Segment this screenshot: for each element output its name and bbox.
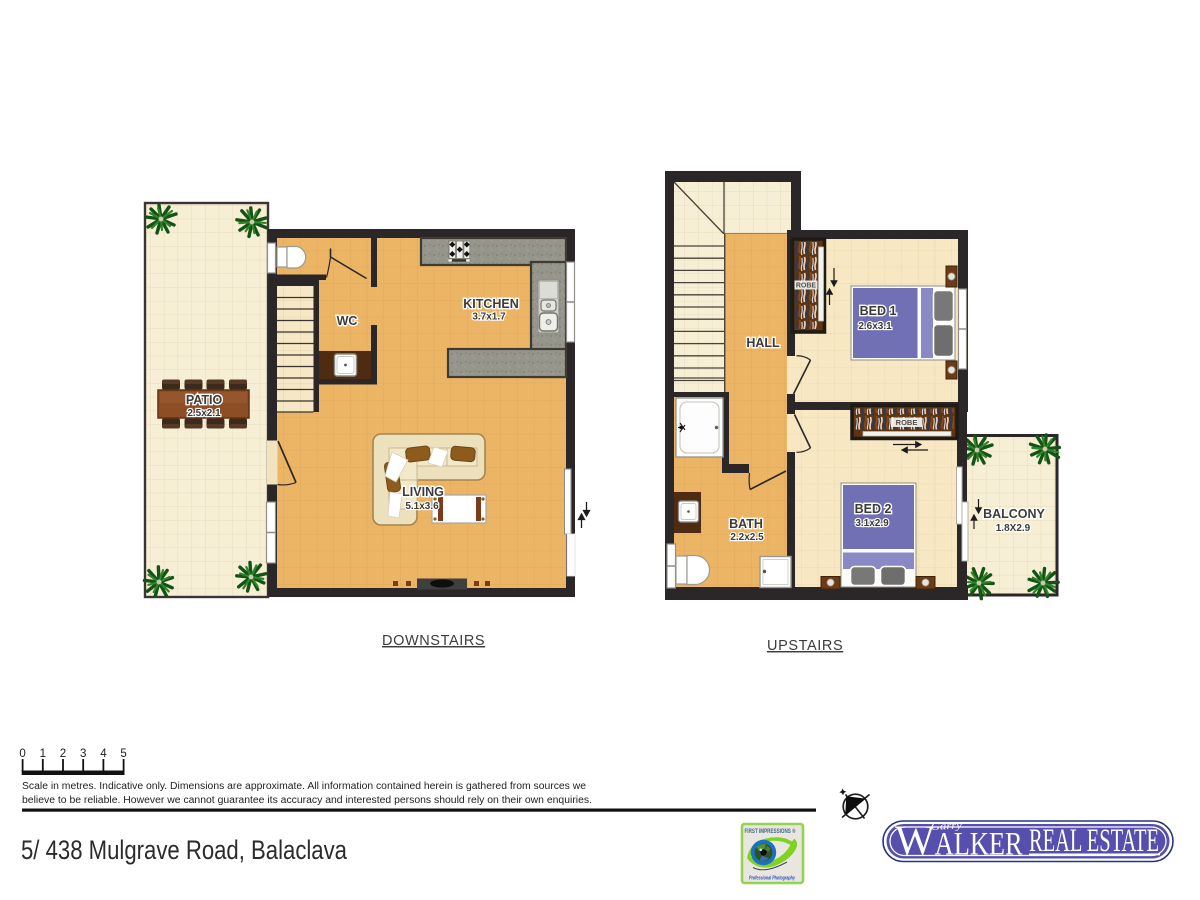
- svg-text:Scale in metres. Indicative on: Scale in metres. Indicative only. Dimens…: [22, 781, 586, 792]
- svg-text:BALCONY: BALCONY: [983, 507, 1045, 521]
- svg-text:PATIO: PATIO: [186, 393, 223, 407]
- svg-text:ROBE: ROBE: [896, 418, 918, 427]
- svg-text:5.1x3.6: 5.1x3.6: [405, 501, 439, 512]
- svg-text:5/ 438 Mulgrave Road, Balaclav: 5/ 438 Mulgrave Road, Balaclava: [21, 835, 348, 865]
- svg-text:3: 3: [80, 748, 86, 760]
- svg-text:Garry: Garry: [931, 820, 963, 833]
- svg-text:1: 1: [40, 748, 46, 760]
- svg-text:2.5x2.1: 2.5x2.1: [187, 408, 221, 419]
- svg-text:1.8X2.9: 1.8X2.9: [996, 523, 1031, 534]
- svg-text:2: 2: [60, 748, 66, 760]
- svg-text:3.1x2.9: 3.1x2.9: [855, 518, 889, 529]
- svg-text:0: 0: [19, 748, 25, 760]
- svg-text:Professional Photography: Professional Photography: [749, 876, 796, 882]
- svg-text:3.7x1.7: 3.7x1.7: [472, 312, 506, 323]
- svg-text:DOWNSTAIRS: DOWNSTAIRS: [382, 633, 485, 649]
- svg-text:BED 2: BED 2: [855, 502, 892, 516]
- svg-text:BATH: BATH: [729, 517, 763, 531]
- svg-text:FIRST IMPRESSIONS ®: FIRST IMPRESSIONS ®: [745, 828, 796, 835]
- svg-text:ROBE: ROBE: [796, 283, 817, 290]
- svg-text:UPSTAIRS: UPSTAIRS: [767, 638, 843, 654]
- svg-text:HALL: HALL: [746, 336, 780, 350]
- svg-text:WC: WC: [337, 314, 358, 328]
- svg-text:2.2x2.5: 2.2x2.5: [730, 532, 764, 543]
- svg-text:4: 4: [100, 748, 107, 760]
- svg-text:LIVING: LIVING: [402, 485, 444, 499]
- svg-text:BED 1: BED 1: [860, 304, 897, 318]
- svg-text:5: 5: [120, 748, 126, 760]
- svg-text:2.6x3.1: 2.6x3.1: [858, 321, 892, 332]
- svg-text:believe to be reliable. Howev: believe to be reliable. However we canno…: [22, 795, 592, 806]
- svg-text:KITCHEN: KITCHEN: [463, 297, 519, 311]
